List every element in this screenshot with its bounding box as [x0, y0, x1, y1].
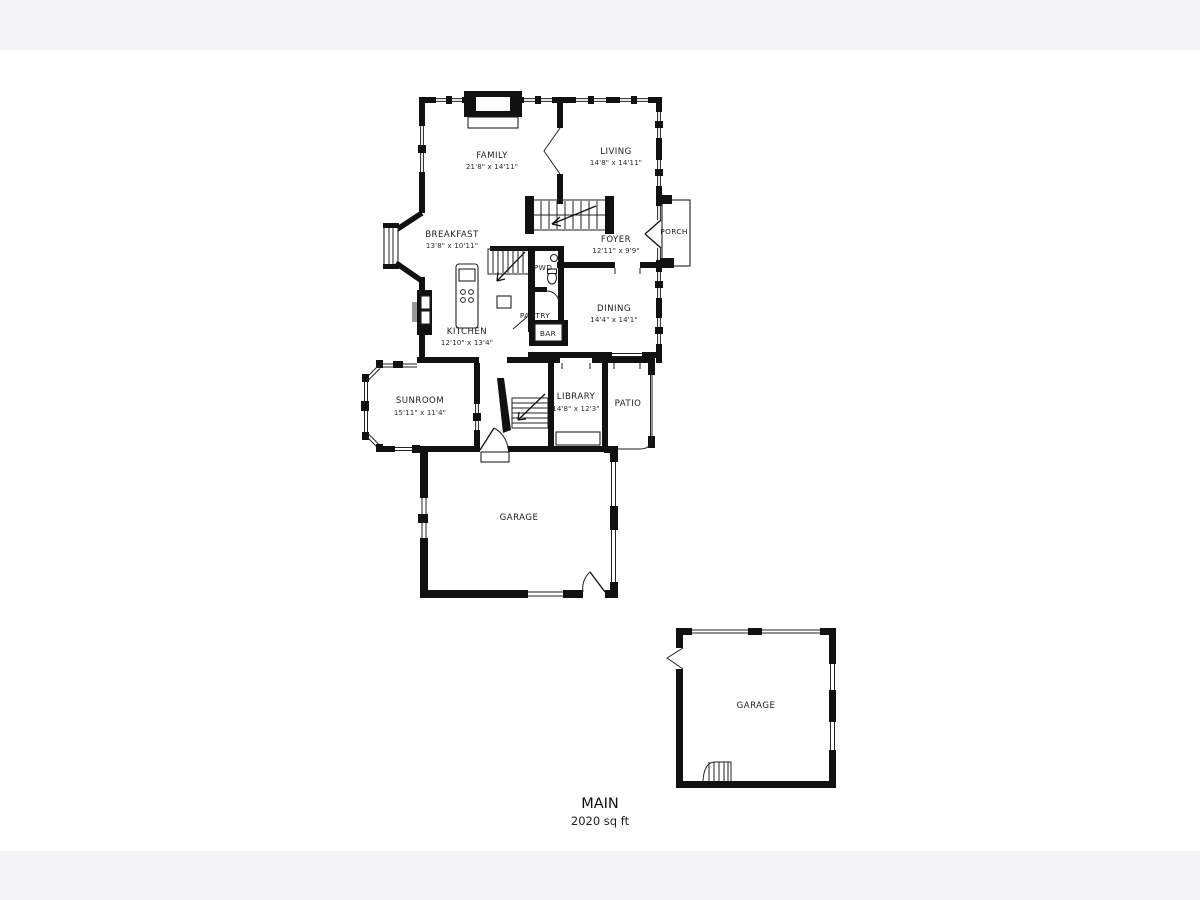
library-dims: 14'8" x 12'3": [552, 405, 600, 413]
garage-detached-label: GARAGE: [737, 701, 776, 711]
dining-room-dims: 14'4" x 14'1": [590, 316, 638, 324]
dining-room-label: DINING: [597, 304, 631, 314]
top-wall: [420, 96, 662, 104]
fireplace-chimney: [464, 91, 522, 128]
floor-area-label: 2020 sq ft: [571, 814, 630, 828]
floor-name-label: MAIN: [581, 796, 619, 812]
powder-room-label: PWD: [534, 263, 553, 272]
sunroom-walls: [361, 360, 481, 453]
detached-garage-stairs: [703, 762, 731, 781]
floor-title: MAIN 2020 sq ft: [571, 796, 630, 828]
floor-plan-svg: FAMILY 21'8" x 14'11" LIVING 14'8" x 14'…: [0, 0, 1200, 900]
breakfast-bay-window: [383, 213, 422, 281]
lower-band-walls: [417, 357, 655, 369]
bar-label: BAR: [540, 329, 556, 338]
kitchen-label: KITCHEN: [447, 327, 487, 337]
patio-label: PATIO: [615, 399, 642, 409]
breakfast-room-label: BREAKFAST: [425, 230, 479, 240]
porch-label: PORCH: [660, 227, 688, 236]
living-room-label: LIVING: [600, 147, 632, 157]
floor-plan: FAMILY 21'8" x 14'11" LIVING 14'8" x 14'…: [361, 91, 836, 828]
main-staircase: [525, 196, 614, 234]
floorplan-page: FAMILY 21'8" x 14'11" LIVING 14'8" x 14'…: [0, 0, 1200, 900]
family-room-dims: 21'8" x 14'11": [466, 163, 518, 171]
garage-attached-label: GARAGE: [500, 513, 539, 523]
family-living-wall: [544, 97, 563, 204]
sunroom-dims: 15'11" x 11'4": [394, 409, 446, 417]
breakfast-room-dims: 13'8" x 10'11": [426, 242, 478, 250]
foyer-dims: 12'11" x 9'9": [592, 247, 640, 255]
foyer-label: FOYER: [601, 235, 631, 245]
kitchen-dims: 12'10" x 13'4": [441, 339, 493, 347]
family-room-label: FAMILY: [476, 151, 508, 161]
foyer-dining-wall: [557, 262, 662, 274]
front-double-door: [645, 220, 661, 248]
sunroom-label: SUNROOM: [396, 396, 444, 406]
room-labels: FAMILY 21'8" x 14'11" LIVING 14'8" x 14'…: [394, 147, 775, 711]
pantry-label: PANTRY: [520, 311, 550, 320]
living-room-dims: 14'8" x 14'11": [590, 159, 642, 167]
library-label: LIBRARY: [557, 392, 596, 402]
kitchen-sink-counter: [412, 290, 432, 335]
hall-staircase: [497, 378, 548, 433]
